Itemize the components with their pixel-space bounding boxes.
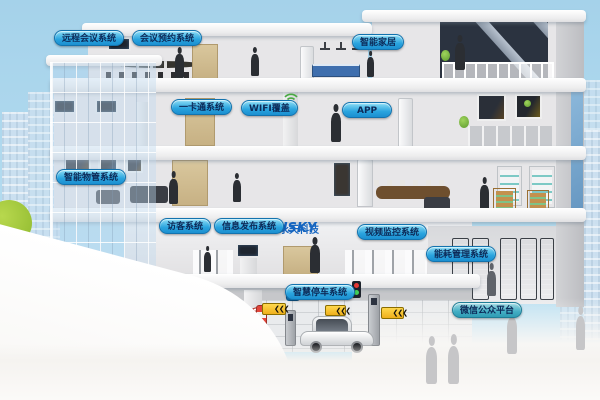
red-light [354,283,359,288]
person-silhouette [309,237,321,273]
wall-poster [477,94,506,121]
meeting-chairs [374,180,452,186]
person-silhouette-handshake [446,334,461,384]
person-silhouette [330,104,342,142]
ceiling-lamp [320,48,330,50]
desk-row [468,126,552,146]
chevron-glyph: ❮❮❮ [393,308,408,319]
server-rack [520,238,537,300]
label-wechat: 微信公众平台 [452,302,522,318]
machine-screen [371,298,377,305]
label-smart-home: 智能家居 [352,34,404,50]
person-silhouette [366,51,375,77]
person-silhouette [250,47,260,76]
label-info-publish: 信息发布系统 [214,218,284,234]
label-app: APP [342,102,392,118]
plant [524,100,531,107]
person-silhouette [486,263,497,296]
smart-building-illustration: USKY永天科技 ➜ ❮❮❮ ❮❮❮ ❮❮❮ [0,0,600,400]
label-property-mgmt: 智能物管系统 [56,169,126,185]
label-meeting-booking: 会议预约系统 [132,30,202,46]
label-energy-mgmt: 能耗管理系统 [426,246,496,262]
server-rack [540,238,554,300]
turnstile-gates [345,250,427,275]
person-silhouette-handshake [424,336,439,384]
air-conditioner [357,159,373,207]
label-wifi-coverage: WIFI覆盖 [241,100,298,116]
person-silhouette [168,171,179,204]
person-silhouette [454,35,466,70]
turnstile-gates [193,250,233,275]
air-conditioner [398,98,413,148]
server-rack [500,238,517,300]
roof-slab [362,10,586,22]
elevator-doors [192,44,218,80]
person-silhouette [174,47,185,78]
person-silhouette-traveler [574,306,587,350]
label-one-card: 一卡通系统 [171,99,232,115]
ticket-machine [285,310,296,346]
plant [441,50,450,61]
ceiling-lamp [336,48,346,50]
label-visitor: 访客系统 [159,218,211,234]
usky-logo-company: 永天科技 [279,221,319,236]
table-tennis [312,64,360,77]
chevron-sign: ❮❮❮ [262,303,286,315]
chevron-glyph: ❮❮❮ [274,304,289,315]
car-window [316,319,348,331]
person-silhouette [479,177,490,211]
roof-slab [82,23,372,36]
machine-screen [288,314,293,321]
fridge-dark [333,162,351,197]
chevron-sign: ❮❮❮ [325,305,346,316]
label-smart-parking: 智慧停车系统 [285,284,355,300]
person-silhouette [203,246,212,272]
label-remote-conference: 远程会议系统 [54,30,124,46]
plant [459,116,469,128]
chevron-sign: ❮❮❮ [381,307,404,319]
label-video-surveillance: 视频监控系统 [357,224,427,240]
person-silhouette [232,173,242,202]
kiosk-screen [236,243,260,258]
